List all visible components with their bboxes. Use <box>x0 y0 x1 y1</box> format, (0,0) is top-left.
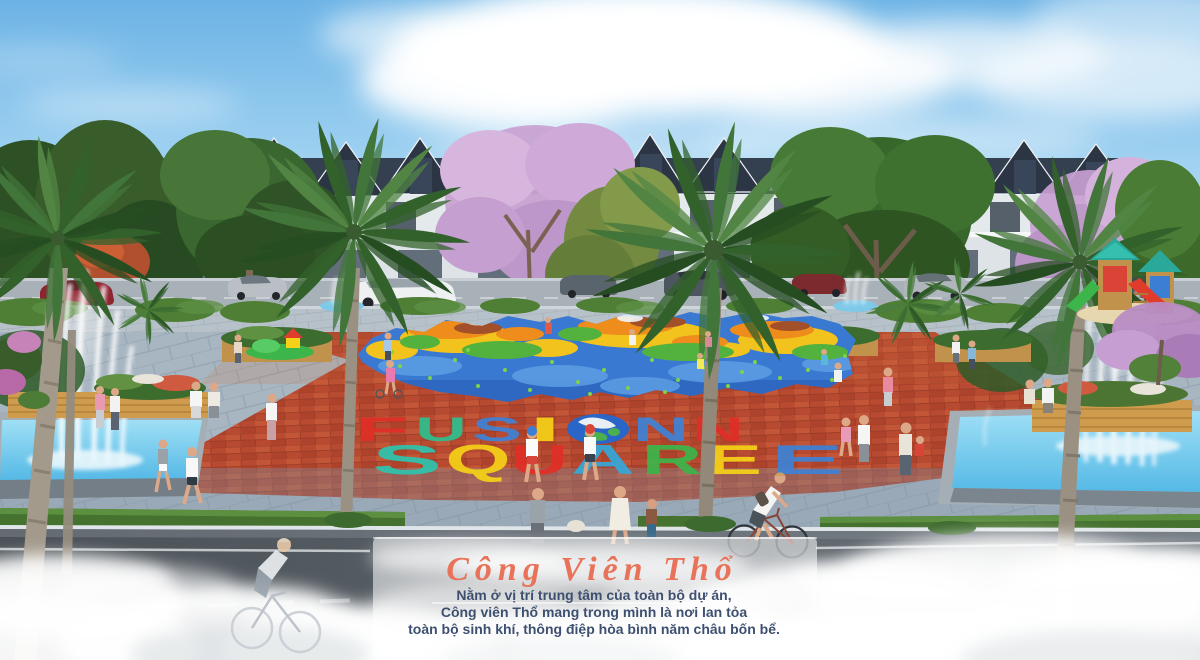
svg-text:R: R <box>642 437 703 484</box>
svg-text:Công Viên Thổ: Công Viên Thổ <box>446 551 738 588</box>
svg-text:Công viên Thổ mang trong mình: Công viên Thổ mang trong mình là nơi lan… <box>441 604 747 620</box>
svg-text:Nằm ở vị trí trung tâm của toà: Nằm ở vị trí trung tâm của toàn bộ dự án… <box>456 586 731 603</box>
svg-text:S: S <box>372 436 442 483</box>
svg-text:toàn bộ sinh khí, thông điệp h: toàn bộ sinh khí, thông điệp hòa bình nă… <box>408 621 780 637</box>
svg-text:A: A <box>571 436 635 483</box>
svg-text:Q: Q <box>445 437 510 484</box>
